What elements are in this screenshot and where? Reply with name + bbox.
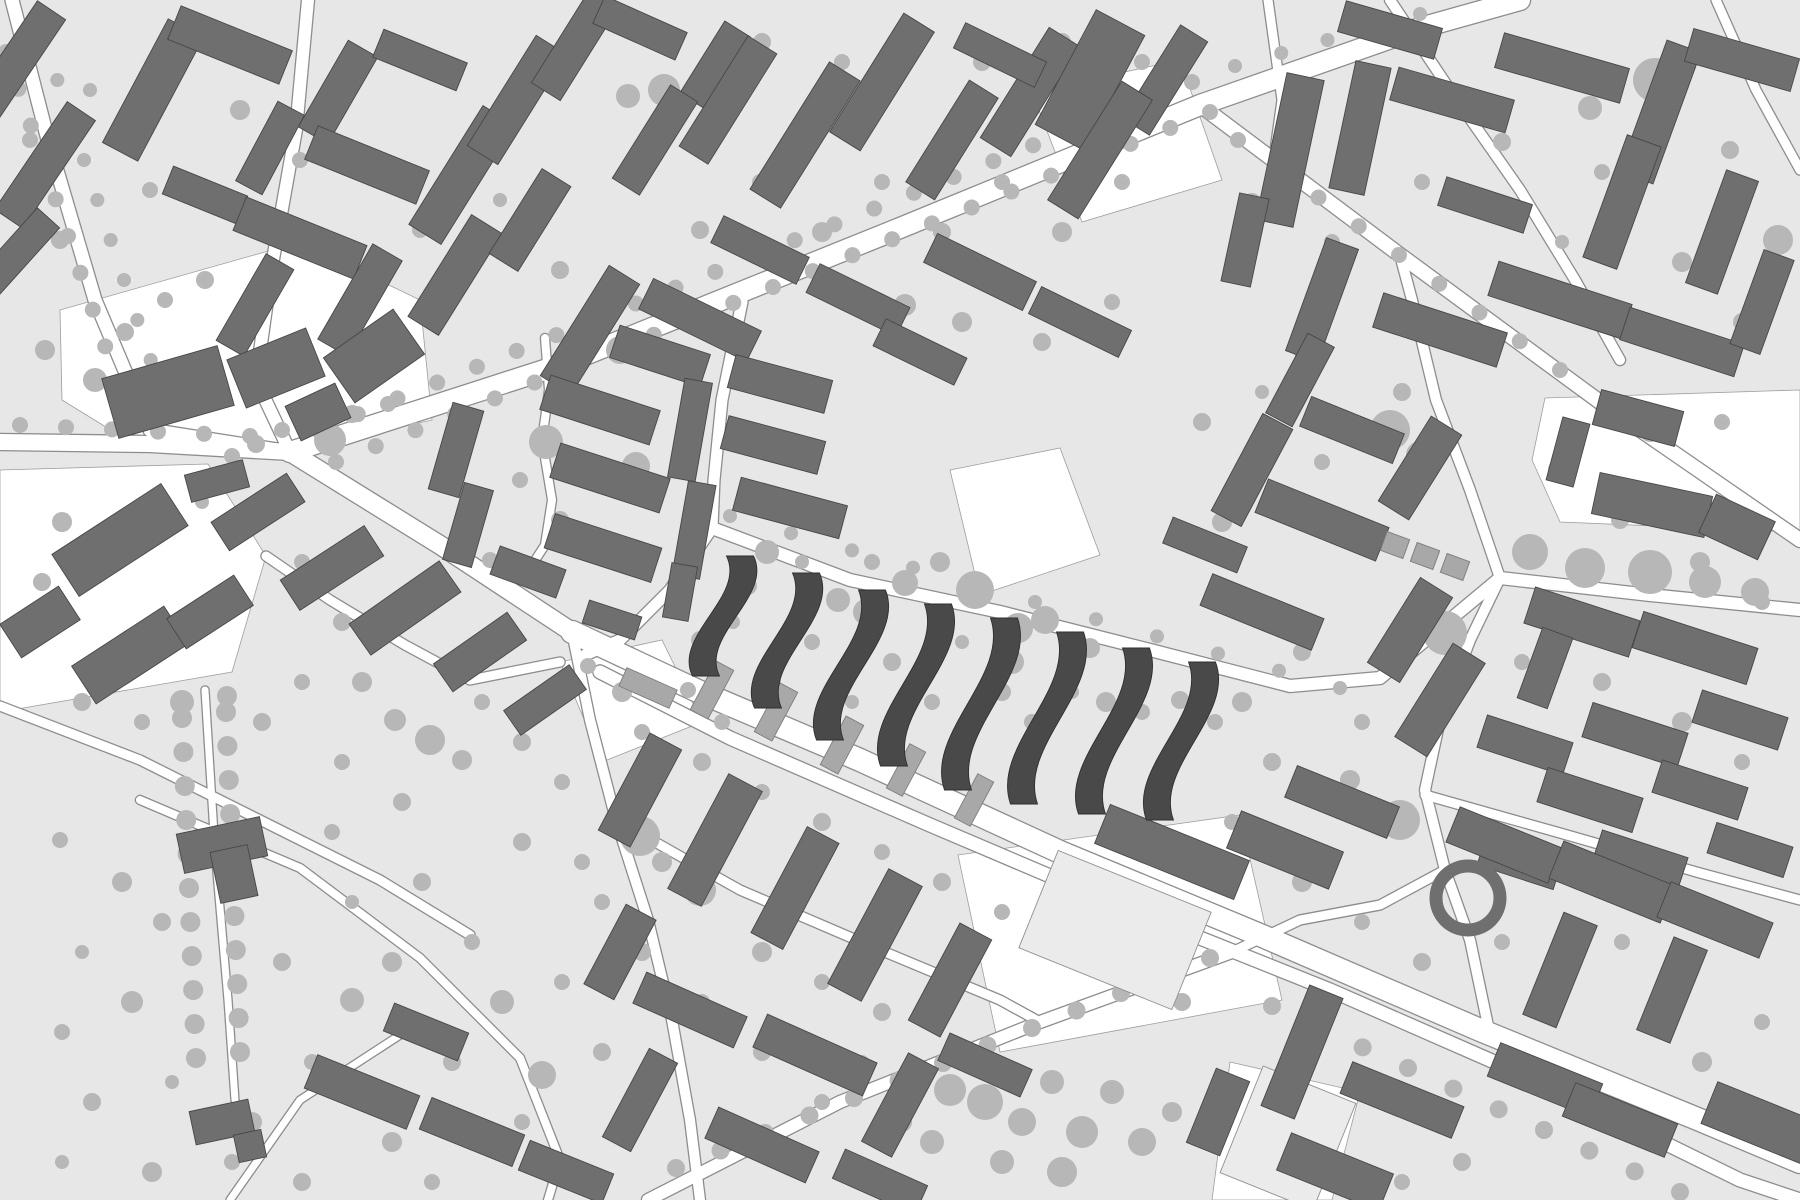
tree (173, 742, 193, 762)
tree (616, 84, 640, 108)
tree (924, 694, 940, 710)
tree (1578, 96, 1602, 120)
tree (866, 201, 882, 217)
tree (883, 653, 901, 671)
tree (48, 191, 64, 207)
tree (652, 852, 672, 872)
tree (1514, 654, 1530, 670)
tree (795, 555, 809, 569)
tree (1394, 1174, 1410, 1190)
tree (229, 1008, 249, 1028)
tree (474, 694, 490, 710)
tree (1272, 664, 1286, 678)
tree (1201, 949, 1219, 967)
tree (1490, 1100, 1508, 1118)
tree (1321, 33, 1335, 47)
tree (393, 793, 411, 811)
tree (247, 435, 265, 453)
tree (424, 1174, 440, 1190)
tree (134, 714, 150, 730)
tree (1721, 141, 1739, 159)
tree (230, 100, 250, 120)
tree (217, 686, 237, 706)
tree (1089, 612, 1103, 626)
tree (185, 1014, 205, 1034)
tree (186, 1048, 206, 1068)
tree (1150, 629, 1164, 643)
tree (334, 754, 350, 770)
building-footprint (233, 1129, 266, 1162)
tree (1028, 595, 1042, 609)
tree (1754, 594, 1770, 610)
tree (1354, 914, 1370, 930)
tree (1052, 222, 1072, 242)
tree (112, 872, 132, 892)
tree (967, 1084, 1003, 1120)
tree (493, 193, 507, 207)
tree (77, 153, 91, 167)
tree (1354, 714, 1370, 730)
tree (345, 895, 359, 909)
tree (528, 1061, 556, 1089)
tree (1207, 714, 1223, 730)
tree (814, 1094, 830, 1110)
tree (933, 873, 951, 891)
tree (934, 1074, 966, 1106)
tree (1754, 1014, 1770, 1030)
tree (1263, 753, 1281, 771)
tree (97, 338, 113, 354)
tree (1552, 362, 1568, 378)
tree (72, 265, 88, 281)
tree (714, 714, 730, 730)
tree (415, 725, 445, 755)
tree (1593, 673, 1611, 691)
tree (1391, 247, 1407, 263)
tree (75, 945, 89, 959)
tree (429, 375, 445, 391)
tree (1690, 552, 1710, 572)
tree (50, 73, 64, 87)
tree (1453, 1153, 1471, 1171)
tree (1431, 276, 1447, 292)
tree (955, 635, 969, 649)
tree (219, 770, 239, 790)
tree (328, 454, 344, 470)
tree (294, 674, 310, 690)
tree (1033, 333, 1051, 351)
tree (382, 1132, 402, 1152)
tree (224, 906, 244, 926)
tree (1040, 1070, 1064, 1094)
tree (1472, 305, 1488, 321)
tree (594, 894, 610, 910)
tree (196, 426, 212, 442)
tree (845, 543, 859, 557)
tree (1047, 1157, 1077, 1187)
tree (253, 713, 271, 731)
tree (1031, 606, 1059, 634)
tree (801, 1107, 819, 1125)
tree (384, 709, 406, 731)
tree (826, 588, 850, 612)
tree (23, 118, 39, 134)
tree (1393, 383, 1411, 401)
tree (196, 271, 214, 289)
tree (765, 279, 781, 295)
tree (1043, 168, 1059, 184)
tree (787, 232, 803, 248)
tree (35, 340, 55, 360)
tree (380, 396, 396, 412)
tree (1100, 1080, 1124, 1104)
tree (693, 753, 711, 771)
tree (813, 813, 831, 831)
tree (1689, 566, 1721, 598)
tree (864, 554, 880, 570)
tree (1255, 385, 1269, 399)
tree (1512, 333, 1528, 349)
tree (513, 833, 531, 851)
tree (352, 672, 372, 692)
tree (487, 390, 503, 406)
tree (1263, 997, 1281, 1015)
tree (844, 247, 860, 263)
tree (340, 988, 364, 1012)
tree (142, 182, 158, 198)
tree (1008, 1108, 1036, 1136)
tree (884, 231, 900, 247)
tree (382, 952, 402, 972)
tree (1494, 934, 1510, 950)
tree (985, 153, 1001, 169)
tree (574, 854, 590, 870)
tree (1025, 137, 1041, 153)
tree (814, 974, 830, 990)
tree (1162, 120, 1178, 136)
tree (176, 810, 196, 830)
tree (90, 193, 104, 207)
tree (226, 940, 246, 960)
tree (1128, 1128, 1156, 1156)
tree (874, 844, 890, 860)
tree (1114, 174, 1130, 190)
tree (667, 1159, 685, 1177)
tree (874, 174, 890, 190)
city-map (0, 0, 1800, 1200)
tree (179, 878, 199, 898)
tree (413, 873, 431, 891)
tree (580, 658, 596, 674)
tree (407, 422, 423, 438)
tree (707, 264, 723, 280)
tree (920, 1130, 944, 1154)
tree (1628, 550, 1672, 594)
tree (1202, 104, 1218, 120)
tree (1104, 294, 1120, 310)
tree (22, 132, 38, 148)
tree (142, 1162, 162, 1182)
tree (12, 417, 28, 433)
tree (725, 295, 741, 311)
tree (217, 736, 237, 756)
tree (1614, 934, 1630, 950)
tree (469, 359, 485, 375)
tree (227, 974, 247, 994)
tree (293, 1173, 311, 1191)
tree (952, 312, 972, 332)
tree (1493, 133, 1511, 151)
tree (1232, 692, 1252, 712)
tree (274, 422, 290, 438)
tree (182, 946, 202, 966)
tree (994, 174, 1010, 190)
tree (104, 233, 118, 247)
tree (1354, 1038, 1372, 1056)
tree (554, 774, 570, 790)
tree (175, 776, 195, 796)
tree (33, 573, 51, 591)
tree (1023, 1019, 1041, 1037)
tree (230, 1042, 250, 1062)
tree (680, 682, 696, 698)
tree (752, 942, 772, 962)
tree (54, 1024, 70, 1040)
tree (1193, 413, 1211, 431)
tree (956, 571, 994, 609)
tree (1580, 1142, 1598, 1160)
tree (509, 343, 525, 359)
tree (1535, 1121, 1553, 1139)
tree (930, 552, 950, 572)
tree (1672, 252, 1692, 272)
tree (121, 991, 143, 1013)
figure-ground-map-svg (0, 0, 1800, 1200)
tree (1311, 190, 1327, 206)
tree (990, 1150, 1014, 1174)
tree (324, 824, 340, 840)
tree (52, 832, 68, 848)
tree (1351, 218, 1367, 234)
tree (1066, 1116, 1098, 1148)
tree (1555, 235, 1569, 249)
tree (812, 222, 832, 242)
tree (1414, 174, 1430, 190)
tree (85, 302, 101, 318)
tree (153, 913, 171, 931)
tree (464, 934, 480, 950)
tree (117, 273, 131, 287)
tree (1314, 454, 1330, 470)
tree (333, 613, 351, 631)
tree (527, 374, 543, 390)
tree (1211, 647, 1225, 661)
tree (73, 693, 91, 711)
tree (551, 261, 569, 279)
tree (157, 292, 173, 308)
tree (368, 438, 384, 454)
tree (514, 1114, 530, 1130)
tree (755, 540, 779, 564)
tree (1274, 46, 1288, 60)
tree (784, 526, 798, 540)
tree (183, 980, 203, 1000)
tree (1734, 754, 1750, 770)
tree (1068, 1002, 1086, 1020)
tree (1333, 681, 1347, 695)
tree (1626, 1162, 1644, 1180)
tree (1413, 953, 1431, 971)
tree (452, 750, 472, 770)
tree (52, 512, 72, 532)
tree (892, 570, 918, 596)
tree (1594, 164, 1610, 180)
tree (1692, 1052, 1712, 1072)
tree (83, 83, 97, 97)
tree (165, 1075, 179, 1089)
tree (593, 1043, 611, 1061)
tree (1228, 59, 1242, 73)
tree (691, 221, 709, 239)
tree (55, 1155, 69, 1169)
tree (873, 1003, 891, 1021)
tree (170, 690, 194, 714)
tree (490, 990, 514, 1014)
tree (180, 912, 200, 932)
tree (1230, 132, 1246, 148)
tree (964, 199, 980, 215)
tree (58, 419, 74, 435)
tree (1399, 1059, 1417, 1077)
tree (273, 953, 291, 971)
tree (1134, 54, 1150, 70)
tree (1565, 548, 1605, 588)
tree (1444, 1080, 1462, 1098)
tree (1714, 414, 1730, 430)
tree (554, 974, 570, 990)
tree (994, 904, 1010, 920)
tree (130, 313, 144, 327)
tree (1512, 534, 1548, 570)
tree (83, 1093, 101, 1111)
tree (512, 472, 528, 488)
tree (513, 733, 531, 751)
tree (804, 634, 820, 650)
tree (116, 323, 134, 341)
tree (1413, 7, 1427, 21)
tree (1162, 1102, 1182, 1122)
